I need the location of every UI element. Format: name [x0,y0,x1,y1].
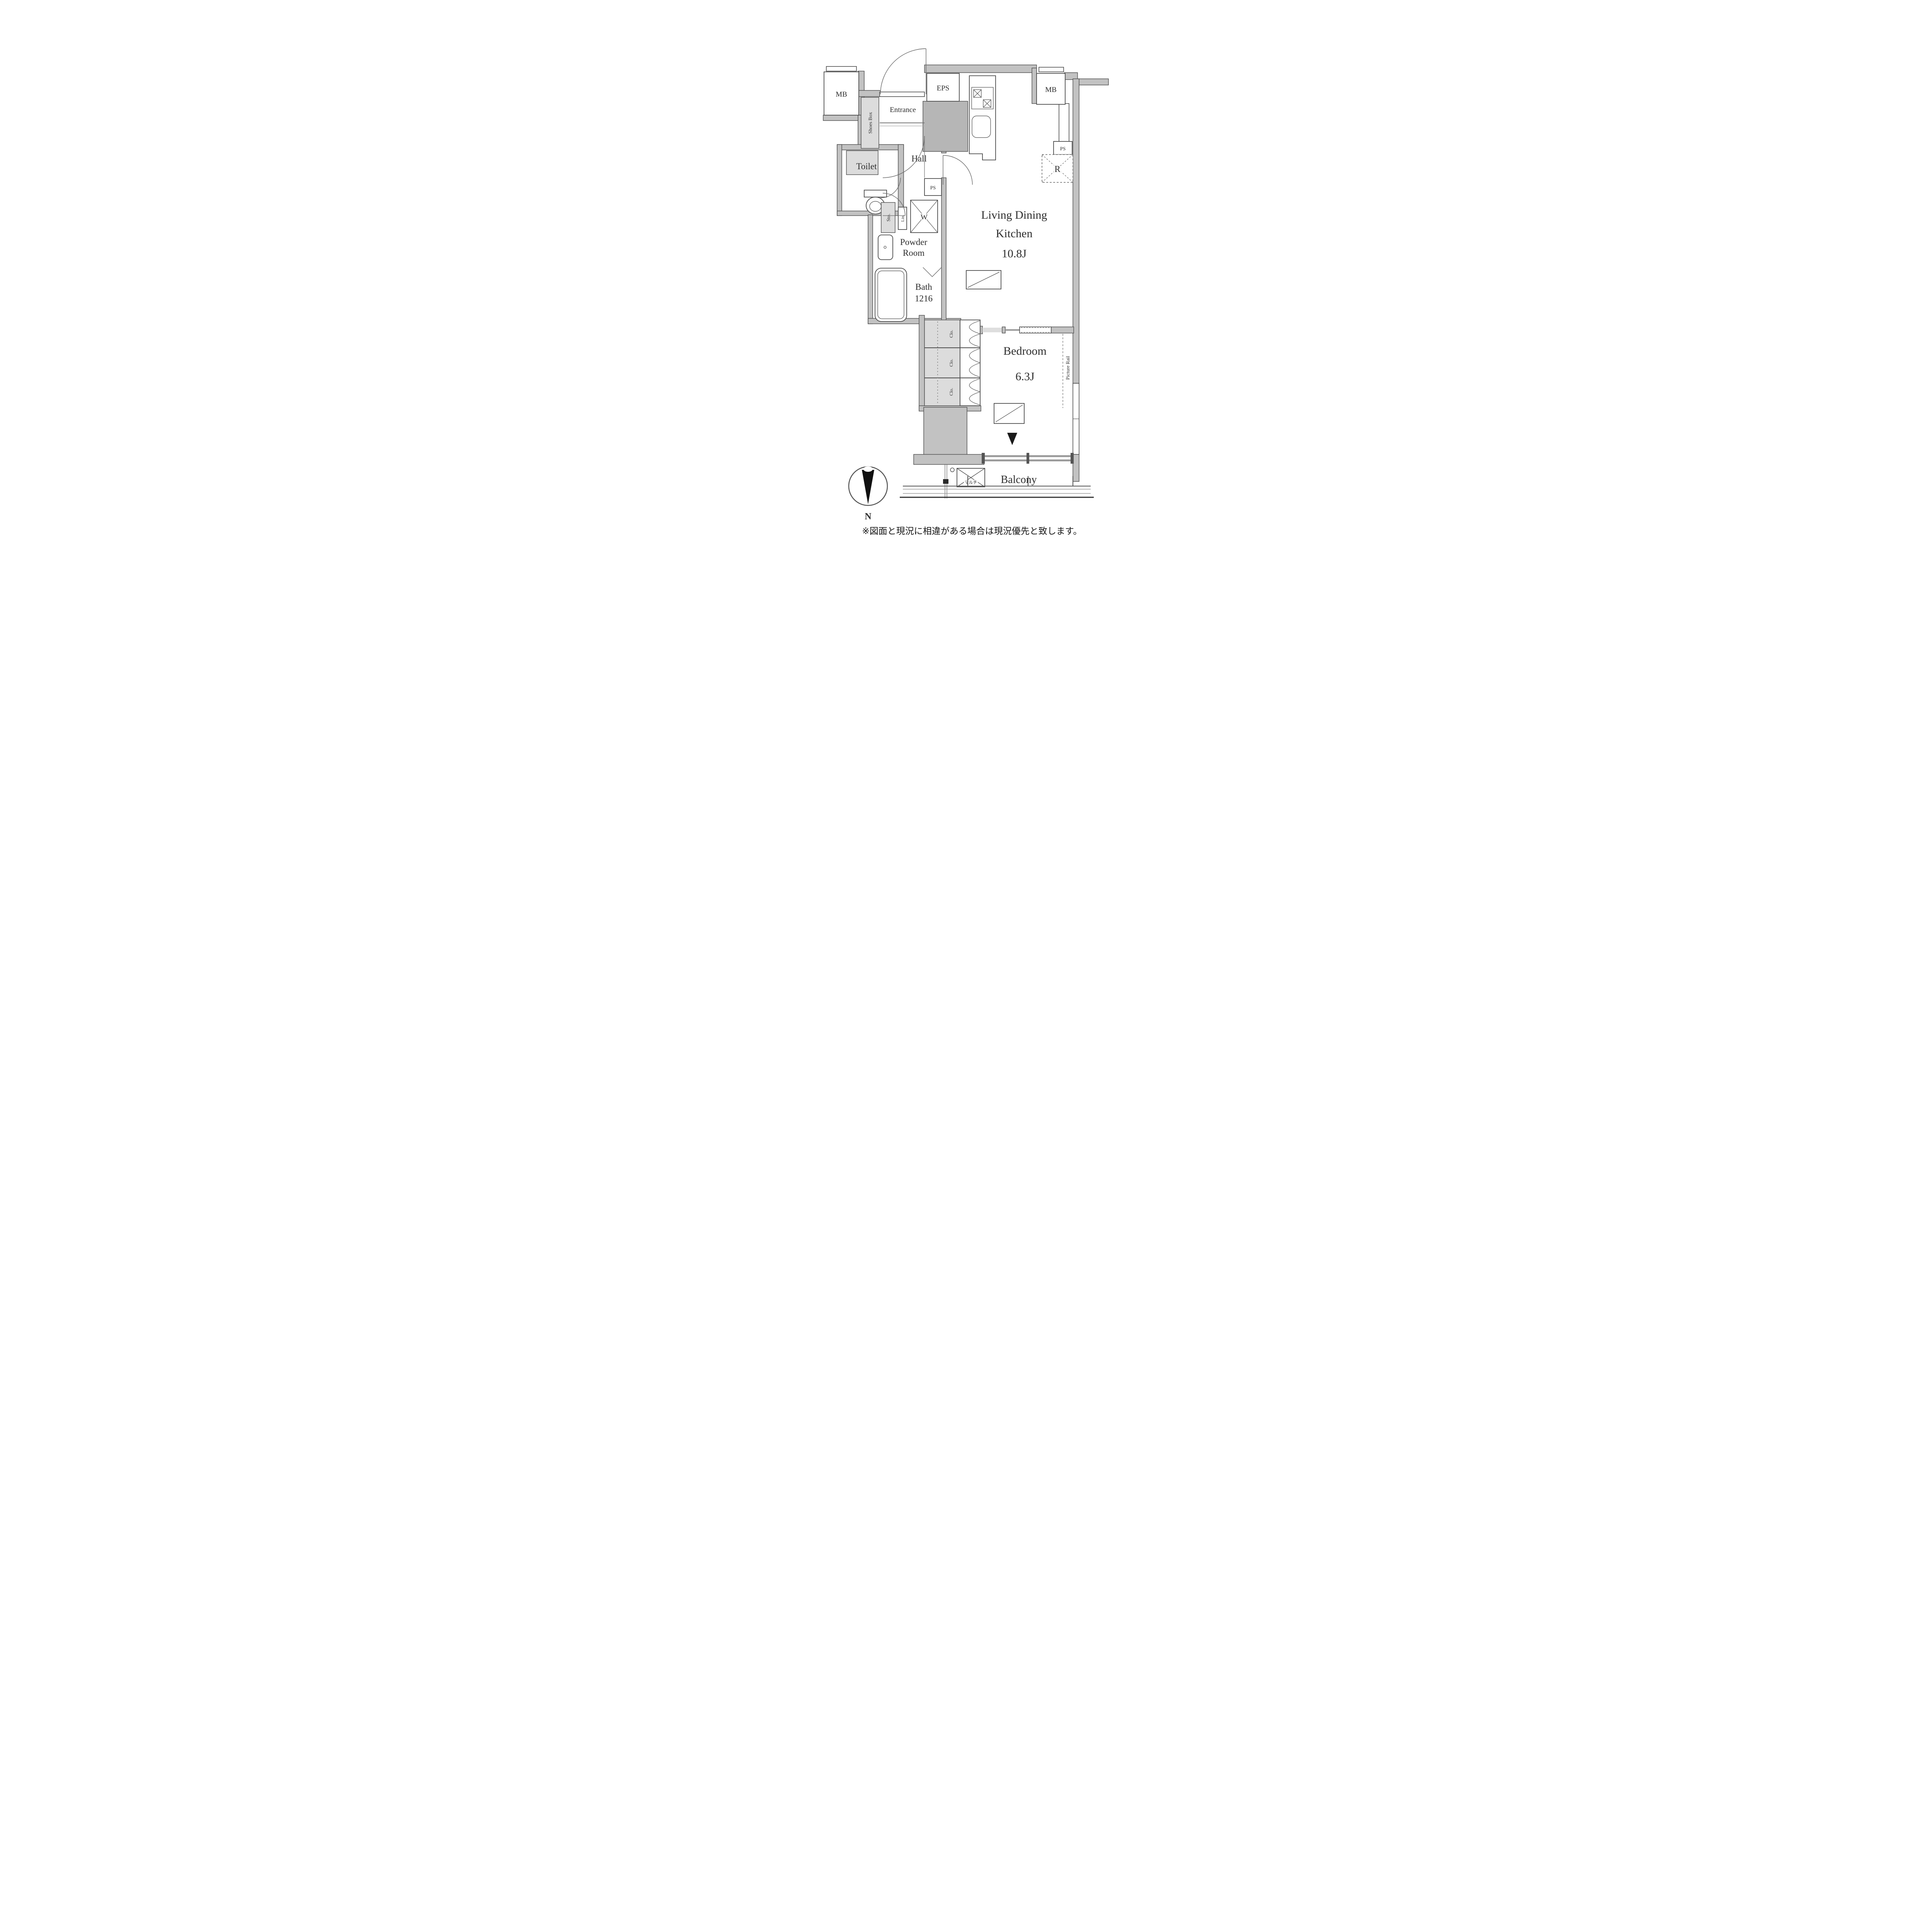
entry-direction-marker [1007,433,1017,445]
compass-north-label: N [865,512,872,522]
closet-label-1: Clo. [948,330,954,338]
picture-rail-label: Picture Rail [1065,356,1071,380]
shoes-box-label: Shoes Box [867,112,873,134]
washer-label: W [921,213,928,221]
washbasin [878,235,893,260]
entrance-door-opening [880,92,924,97]
disclaimer-text: ※図面と現況に相違がある場合は現況優先と致します。 [862,526,1082,536]
ps-right-label: PS [1060,146,1066,151]
powder-label-2: Room [903,248,924,258]
entrance-area: Entrance [880,49,926,126]
bedroom-ac-unit [994,403,1024,423]
entrance-label: Entrance [890,106,916,114]
bathtub [875,268,907,321]
bedroom-label: Bedroom [1003,345,1047,357]
drain [943,479,948,484]
ldk-label-1: Living Dining [981,209,1047,221]
eps-shaft: EPS [927,73,959,101]
ps-hall-label: PS [930,185,936,190]
ldk-ac-unit [966,270,1001,289]
meter-box-left: MB [824,72,859,115]
ldk-room: Living Dining Kitchen 10.8J [966,209,1047,289]
bath-room: Bath 1216 [875,267,941,321]
storage-cluster: Sto. Lin. W PS [881,179,941,233]
balcony-sliding-window [982,453,1074,464]
refrigerator-label: R [1054,164,1061,174]
balcony-railing [900,476,1094,497]
balcony: Balcony マルチ [900,464,1094,498]
powder-label-1: Powder [900,237,928,247]
kitchen-counter [969,76,996,160]
mb-right-label: MB [1045,86,1057,94]
eps-label: EPS [937,84,950,92]
closets: Clo. Clo. Clo. [924,320,980,406]
mb-left-label: MB [836,90,847,99]
floor-plan-page: Entrance Shoes Box MB MB EPS Hall [767,0,1150,542]
bath-folding-door [923,267,941,277]
closet-label-3: Clo. [948,388,954,396]
multi-outlet-label: マルチ [965,480,977,485]
pipe-space-hall: PS [924,179,941,196]
meter-box-right: MB [1037,73,1065,104]
pipe-space-right: PS [1054,141,1072,155]
bath-size-label: 1216 [915,294,933,303]
toilet-label: Toilet [856,162,877,171]
ldk-label-2: Kitchen [996,227,1033,240]
ldk-door-arc [943,155,972,185]
compass: N [849,466,887,522]
entrance-door-arc [880,49,926,94]
bedroom: Bedroom 6.3J Picture Rail [982,334,1074,464]
refrigerator-space: R [1042,155,1073,182]
storage-label: Sto. [885,214,891,222]
ldk-size-label: 10.8J [1002,247,1027,260]
outlet-dot [950,468,954,472]
balcony-label: Balcony [1001,474,1037,486]
washing-machine: W [911,200,938,233]
floor-plan-drawing: Entrance Shoes Box MB MB EPS Hall [767,0,1150,542]
closet-label-2: Clo. [948,359,954,367]
bedroom-size-label: 6.3J [1015,370,1035,383]
bath-label: Bath [915,282,932,292]
